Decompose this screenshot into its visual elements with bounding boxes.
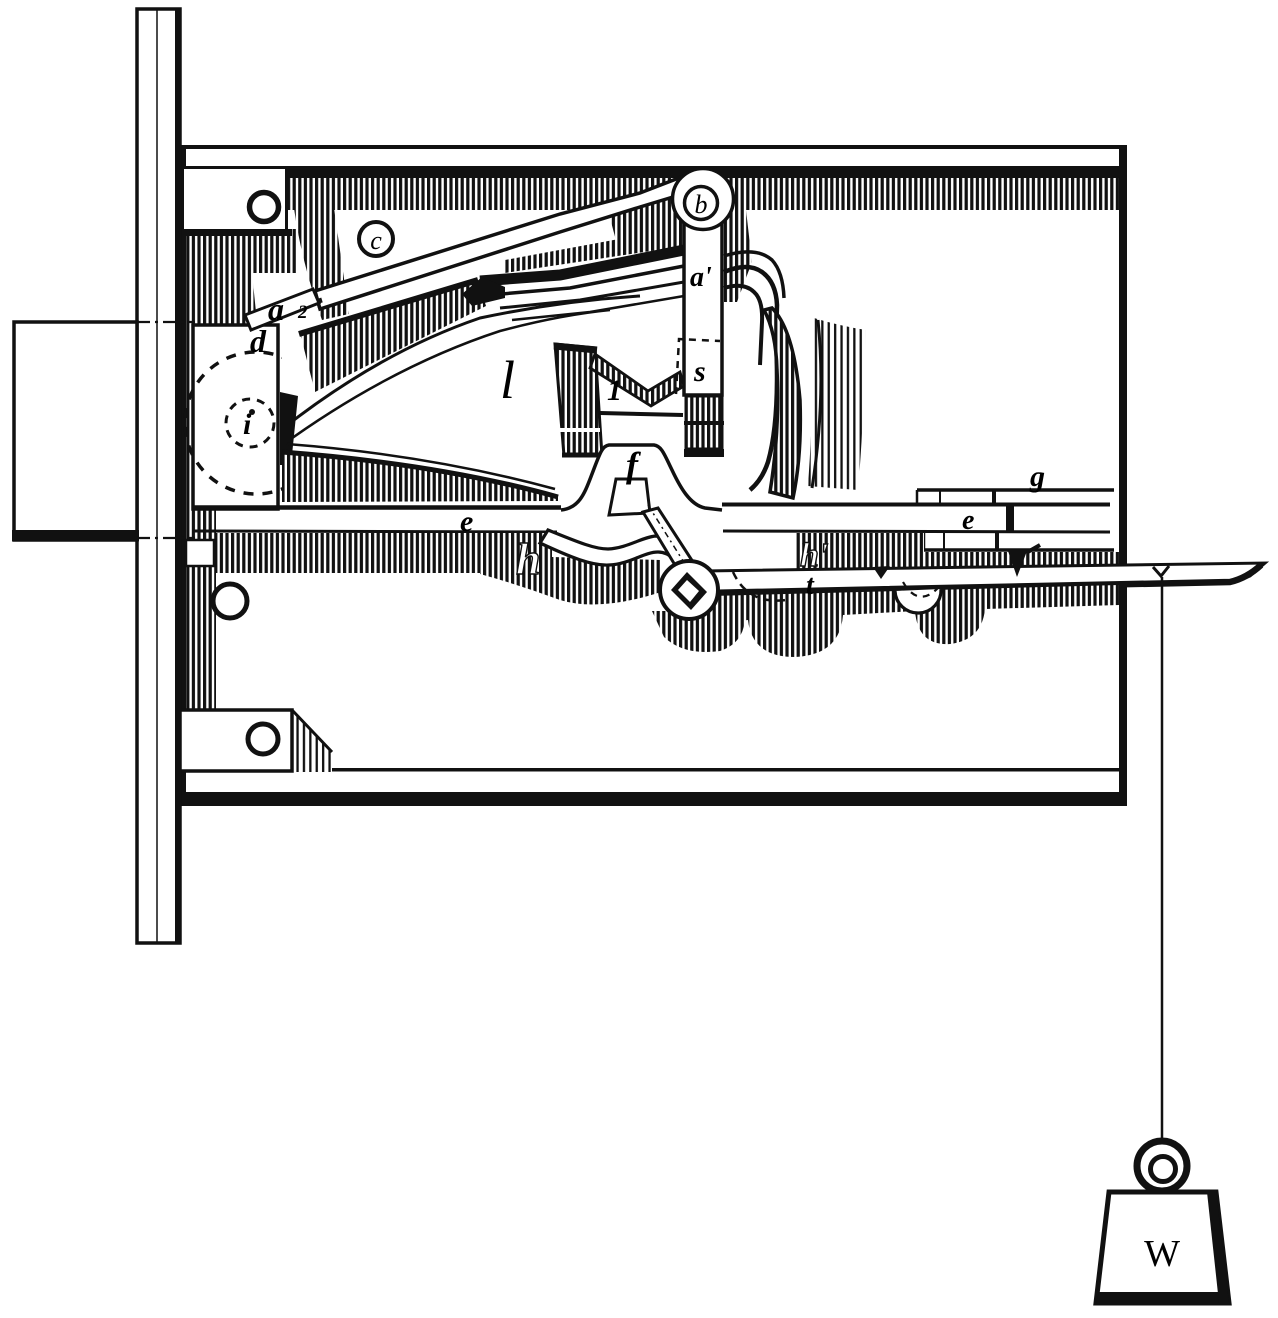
svg-text:W: W	[1144, 1233, 1180, 1275]
svg-text:e: e	[962, 505, 974, 536]
svg-text:d: d	[250, 323, 267, 359]
svg-text:c: c	[370, 226, 382, 255]
svg-text:1: 1	[607, 374, 622, 407]
svg-text:b: b	[695, 190, 708, 219]
svg-text:h: h	[516, 535, 540, 584]
svg-text:a: a	[268, 291, 284, 327]
svg-text:g: g	[1029, 460, 1045, 493]
svg-text:e: e	[460, 505, 473, 538]
svg-text:a': a'	[690, 262, 712, 293]
svg-text:h': h'	[800, 537, 828, 574]
svg-text:i: i	[243, 408, 252, 441]
svg-text:s: s	[693, 355, 706, 388]
svg-text:2: 2	[297, 302, 308, 323]
svg-text:t: t	[806, 570, 815, 601]
svg-text:l: l	[500, 350, 515, 410]
